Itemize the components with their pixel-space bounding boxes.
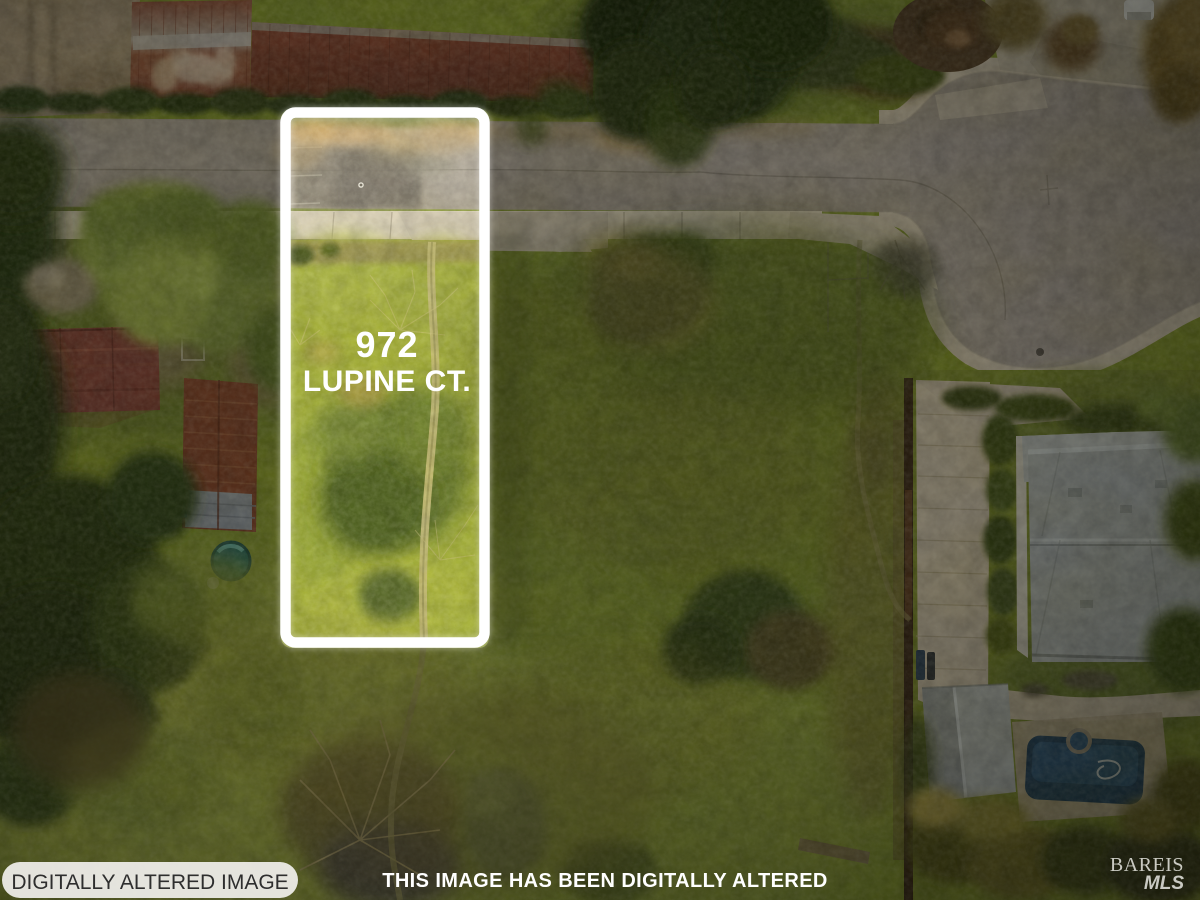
svg-text:DIGITALLY ALTERED IMAGE: DIGITALLY ALTERED IMAGE [11,871,288,894]
svg-text:972: 972 [355,324,418,365]
svg-text:MLS: MLS [1144,873,1184,894]
svg-text:THIS IMAGE HAS BEEN DIGITALLY: THIS IMAGE HAS BEEN DIGITALLY ALTERED [382,870,828,892]
svg-text:LUPINE CT.: LUPINE CT. [303,365,471,398]
